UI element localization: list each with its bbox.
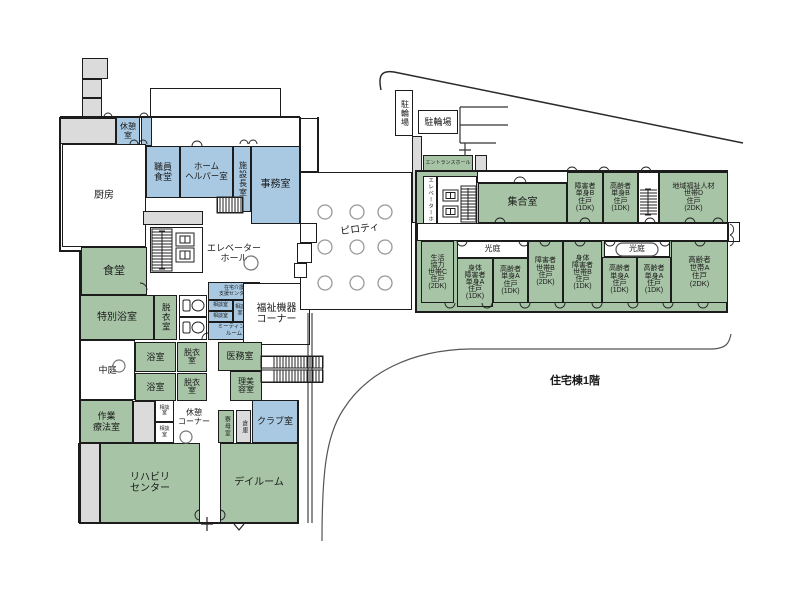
room-blue-sliver <box>141 117 152 146</box>
label-elevator-hall-west: エレベーター ホール <box>203 240 265 266</box>
unit-shogaisha-setai-b-label: 障害者 世帯B 住戸 (2DK) <box>535 257 556 286</box>
room-shokudo-label: 食堂 <box>103 265 125 277</box>
unit-korei-setai-a: 高齢者 世帯A 住戸 (2DK) <box>671 241 728 303</box>
unit-korei-tanshin-a3-label: 高齢者 単身A 住戸 (1DK) <box>644 265 665 294</box>
room-yokushitsu-2-label: 浴室 <box>146 382 164 392</box>
bike-parking: 駐輪場 <box>418 110 458 134</box>
room-souko-label: 倉庫 <box>240 420 247 434</box>
wing-stairs-box <box>638 172 659 223</box>
gray-strip-2 <box>133 401 155 443</box>
room-imushitsu-label: 医務室 <box>226 351 253 361</box>
room-nakaniwa: 中庭 <box>80 340 135 400</box>
unit-shogaisha-setai-b: 障害者 世帯B 住戸 (2DK) <box>528 241 563 303</box>
unit-korei-tanshin-b-label: 高齢者 単身B 住戸 (1DK) <box>610 183 631 212</box>
unit-korei-tanshin-a3: 高齢者 単身A 住戸 (1DK) <box>637 257 671 303</box>
room-shokuin-shokudo-label: 職員 食堂 <box>154 162 172 182</box>
room-dayroom-label: デイルーム <box>234 477 284 488</box>
room-jimushitsu: 事務室 <box>251 146 300 224</box>
room-datsuishitsu-1: 脱衣室 <box>154 295 177 340</box>
room-sodan-a: 相談室 <box>208 300 233 311</box>
kotei-west-label: 光庭 <box>485 245 501 254</box>
label-jutakuto-1f-label: 住宅棟1階 <box>550 375 600 387</box>
room-tokubetsu-yokushitsu-label: 特別浴室 <box>97 312 137 323</box>
unit-shogaisha-tanshin-b-label: 障害者 単身B 住戸 (1DK) <box>575 183 596 212</box>
bike-parking-vertical-label: 駐輪場 <box>400 100 409 127</box>
room-sodan-b: 相談室 <box>208 311 233 322</box>
room-chubo-label: 厨房 <box>94 190 114 201</box>
unit-shogaisha-tanshin-b: 障害者 単身B 住戸 (1DK) <box>567 172 603 223</box>
room-fukushi-kiki-label: 福祉機器 コーナー <box>257 303 297 325</box>
room-jimushitsu-label: 事務室 <box>261 179 291 190</box>
room-club-label: クラブ室 <box>257 416 293 426</box>
room-yokushitsu-2: 浴室 <box>135 373 176 401</box>
room-club: クラブ室 <box>252 400 298 443</box>
room-ribiyou: 理美 容室 <box>230 371 262 401</box>
room-shokuin-shokudo: 職員 食堂 <box>146 146 180 198</box>
wing-top-gap <box>477 171 568 183</box>
terrace <box>150 88 281 118</box>
room-nakaniwa-label: 中庭 <box>98 365 116 375</box>
unit-korei-setai-a-label: 高齢者 世帯A 住戸 (2DK) <box>688 256 711 289</box>
room-kyukei-label: 休憩 室 <box>120 123 136 141</box>
unit-shintai-setai-b: 身体 障害者 世帯B 住戸 (1DK) <box>563 241 602 303</box>
elevator-lobby-west <box>150 227 203 273</box>
label-jutakuto-1f: 住宅棟1階 <box>520 372 630 390</box>
kotei-west: 光庭 <box>457 241 528 258</box>
stairs-south-box <box>261 356 323 383</box>
room-home-helper: ホーム ヘルパー室 <box>180 146 233 198</box>
room-shokudo: 食堂 <box>81 247 147 295</box>
kotei-east-label: 光庭 <box>629 245 645 254</box>
room-shisetsucho-label: 施設長室 <box>238 161 247 197</box>
label-piloti-label: ピロティ <box>340 222 380 238</box>
unit-seikatsu-kyoryoku-c: 生活 協力 世帯C 住戸 (2DK) <box>421 241 454 303</box>
room-rehab: リハビリ センター <box>100 443 200 523</box>
wing-exit-bump <box>728 222 740 242</box>
step-box-1 <box>300 223 317 243</box>
room-sagyou-label: 作業 療法室 <box>93 411 120 431</box>
corridor-strip-1 <box>143 211 203 225</box>
label-kyukei-corner: 休憩 コーナー <box>172 405 216 431</box>
roof-box-3 <box>82 98 102 118</box>
room-datsui-2: 脱衣 室 <box>177 342 207 372</box>
site-boundary-south <box>322 334 731 541</box>
room-sodan-a-label: 相談室 <box>213 303 228 309</box>
room-sodan-b-label: 相談室 <box>213 314 228 320</box>
room-ribiyou-label: 理美 容室 <box>238 378 254 394</box>
floor-plan: 休憩 室厨房職員 食堂ホーム ヘルパー室施設長室事務室食堂特別浴室脱衣室在宅介護… <box>0 0 800 600</box>
roof-box-1 <box>82 58 108 79</box>
label-kyukei-corner-label: 休憩 コーナー <box>178 409 210 427</box>
kotei-east: 光庭 <box>604 241 670 257</box>
wing-corridor <box>417 223 728 241</box>
room-datsuishitsu-1-label: 脱衣室 <box>161 303 171 332</box>
room-tokubetsu-yokushitsu: 特別浴室 <box>80 295 154 340</box>
corridor-bump <box>300 118 318 172</box>
bike-rack-lines <box>459 107 508 156</box>
unit-chiiki-fukushi-d-label: 地域福祉人材 世帯D 住戸 (2DK) <box>673 183 715 212</box>
roof-box-2 <box>82 79 102 98</box>
room-kyukei: 休憩 室 <box>116 117 140 146</box>
bike-parking-vertical: 駐輪場 <box>395 90 413 136</box>
unit-korei-tanshin-a1: 高齢者 単身A 住戸 (1DK) <box>493 258 528 303</box>
room-ryobo-label: 寮母室 <box>223 416 230 437</box>
unit-korei-tanshin-a2-label: 高齢者 単身A 住戸 (1DK) <box>609 265 630 294</box>
room-sodan-e-label: 相談 室 <box>159 427 169 438</box>
gray-strip-3 <box>78 443 100 523</box>
room-home-helper-label: ホーム ヘルパー室 <box>185 162 228 181</box>
unit-shintai-tanshin-a: 身体 障害者 単身A 住戸 (1DK) <box>457 258 493 307</box>
room-toilet-1 <box>179 295 207 317</box>
unit-seikatsu-kyoryoku-c-label: 生活 協力 世帯C 住戸 (2DK) <box>428 255 447 290</box>
unit-korei-tanshin-a1-label: 高齢者 単身A 住戸 (1DK) <box>500 266 521 295</box>
stairs-north-box <box>217 197 243 213</box>
room-sagyou: 作業 療法室 <box>80 400 133 443</box>
room-imushitsu: 医務室 <box>218 342 262 371</box>
bike-parking-label: 駐輪場 <box>424 117 451 127</box>
room-datsui-2-label: 脱衣 室 <box>184 349 200 365</box>
room-dayroom: デイルーム <box>220 443 298 523</box>
north-corridor <box>60 118 116 144</box>
label-elevator-hall-west-label: エレベーター ホール <box>207 243 261 263</box>
entrance-hall-label: エントランスホール <box>426 161 471 167</box>
room-datsui-3: 脱衣 室 <box>177 373 207 401</box>
room-yokushitsu-1: 浴室 <box>135 342 176 372</box>
room-toilet-2 <box>179 317 207 340</box>
room-yokushitsu-1-label: 浴室 <box>146 352 164 362</box>
unit-chiiki-fukushi-d: 地域福祉人材 世帯D 住戸 (2DK) <box>659 172 728 223</box>
room-chubo: 厨房 <box>62 144 146 247</box>
unit-korei-tanshin-b: 高齢者 単身B 住戸 (1DK) <box>603 172 638 223</box>
step-box-2 <box>297 243 312 263</box>
room-souko: 倉庫 <box>236 410 251 443</box>
unit-shintai-tanshin-a-label: 身体 障害者 単身A 住戸 (1DK) <box>465 265 486 300</box>
room-rehab-label: リハビリ センター <box>130 472 170 494</box>
room-datsui-3-label: 脱衣 室 <box>184 379 200 395</box>
unit-shintai-setai-b-label: 身体 障害者 世帯B 住戸 (1DK) <box>572 255 593 290</box>
step-box-3 <box>294 263 307 278</box>
room-shugoshitsu-label: 集合室 <box>508 197 538 208</box>
room-shugoshitsu: 集合室 <box>478 183 567 223</box>
unit-korei-tanshin-a2: 高齢者 単身A 住戸 (1DK) <box>602 257 637 303</box>
room-sodan-d-label: 相談 室 <box>159 406 169 417</box>
room-ryobo: 寮母室 <box>218 410 234 443</box>
